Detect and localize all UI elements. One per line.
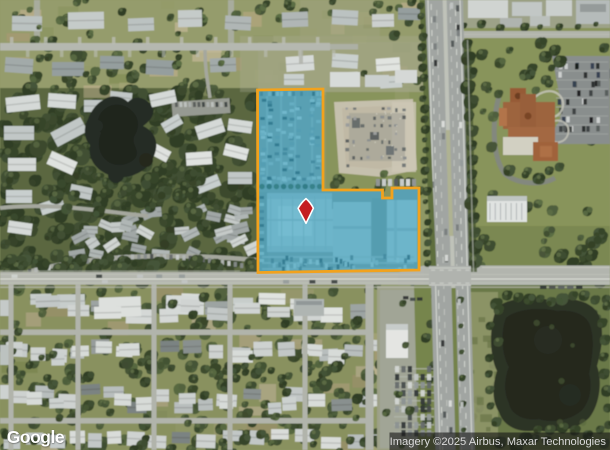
- svg-text:Imagery ©2025 Airbus, Maxar Te: Imagery ©2025 Airbus, Maxar Technologies: [390, 436, 607, 448]
- svg-text:Google: Google: [7, 427, 65, 447]
